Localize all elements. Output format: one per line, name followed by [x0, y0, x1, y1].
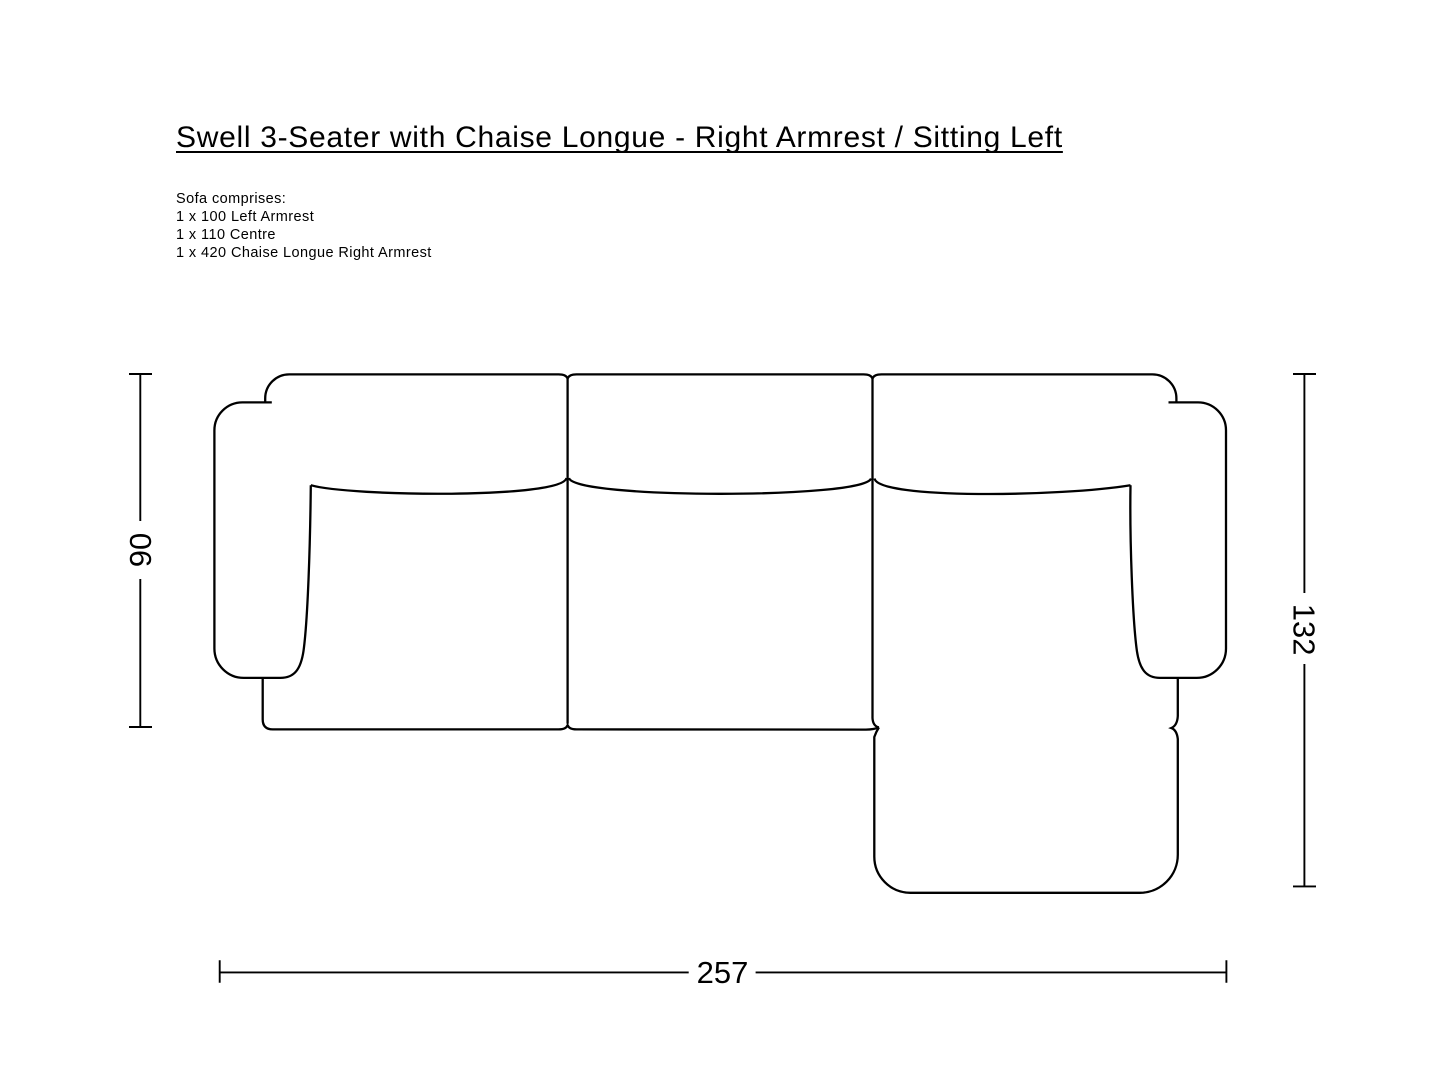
svg-text:132: 132 — [1287, 604, 1322, 656]
svg-text:257: 257 — [697, 955, 749, 990]
svg-text:90: 90 — [123, 533, 158, 567]
